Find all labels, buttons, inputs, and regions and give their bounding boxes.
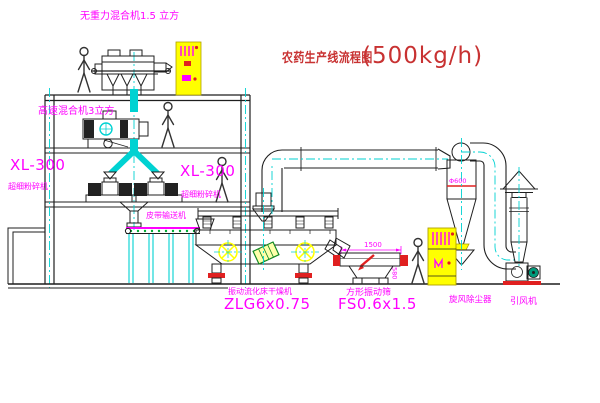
induced-fan-drawing <box>503 263 541 285</box>
diagram-title-capacity: (500kg/h) <box>362 45 483 68</box>
label-mill-name-right: 超细粉碎机 <box>181 191 221 199</box>
label-belt-conveyor: 皮带输送机 <box>146 212 186 220</box>
pulverizer-right <box>132 178 182 202</box>
label-gravity-mixer: 无重力混合机1.5 立方 <box>80 12 179 22</box>
label-cyclone: 旋风除尘器 <box>449 296 492 305</box>
label-high-speed-mixer: 高速混合机3立方 <box>38 107 114 117</box>
pulverizer-left <box>86 178 136 202</box>
duct-to-cyclone <box>262 147 450 214</box>
person-ground <box>412 239 424 284</box>
dim-cyclone-diameter: Φ600 <box>449 178 467 185</box>
zero-gravity-mixer-drawing <box>92 50 173 95</box>
person-roof <box>78 48 90 93</box>
label-mill-name-left: 超细粉碎机 <box>8 183 48 191</box>
control-cabinet-2 <box>428 228 456 285</box>
dim-screen-length: 1500 <box>364 242 382 249</box>
label-screen-model: FS0.6x1.5 <box>338 297 417 312</box>
dim-screen-height: 580 <box>391 267 398 279</box>
belt-conveyor-drawing <box>125 228 200 283</box>
diagram-title: 农药生产线流程图 <box>282 52 373 65</box>
label-mill-model-right: XL-300 <box>180 164 235 179</box>
person-floor2 <box>162 103 174 148</box>
flow-diagram-canvas: 农药生产线流程图 (500kg/h) 无重力混合机1.5 立方 高速混合机3立方… <box>0 0 600 403</box>
control-cabinet-1 <box>176 42 201 95</box>
label-dryer-model: ZLG6x0.75 <box>224 297 311 312</box>
label-fan: 引风机 <box>510 298 537 307</box>
label-mill-model-left: XL-300 <box>10 158 65 173</box>
